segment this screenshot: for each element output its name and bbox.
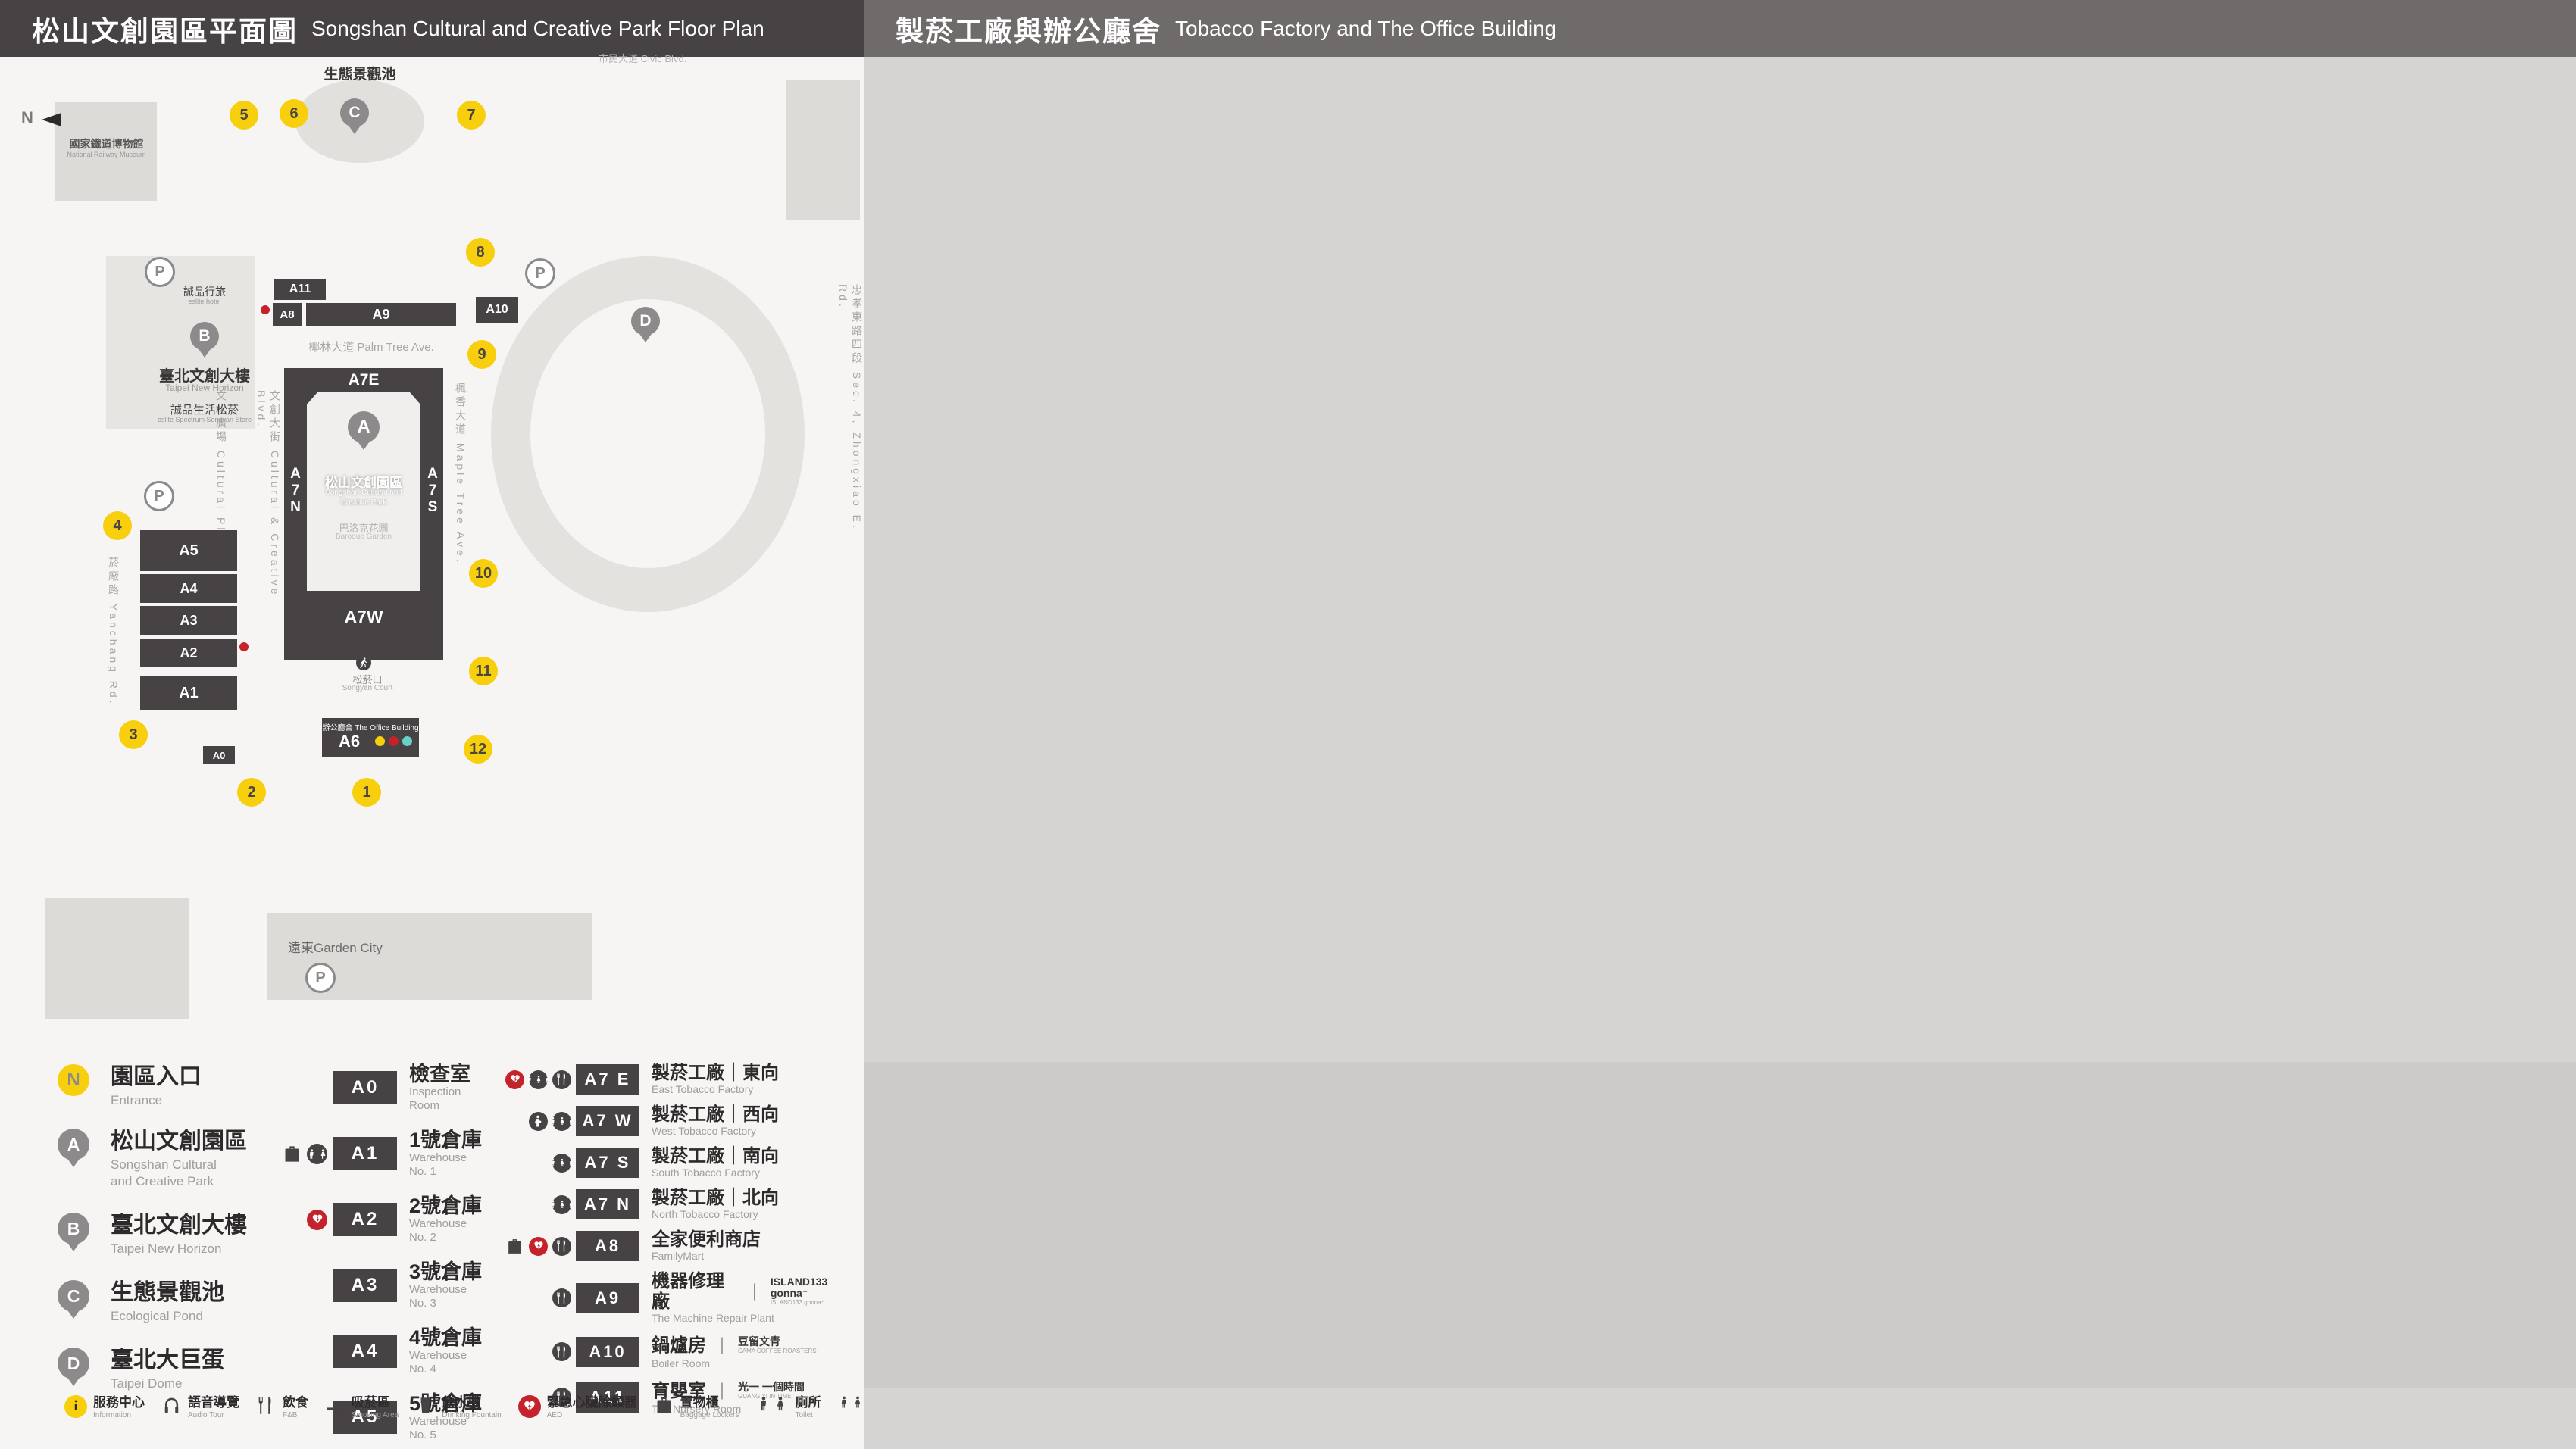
legend-item-en: Warehouse No. 4 <box>409 1349 485 1376</box>
legend-badge-A0: A0 <box>333 1071 397 1104</box>
legend-item-zh: 檢查室 <box>409 1063 485 1085</box>
amenity-en: Information <box>93 1410 145 1420</box>
map-court-en: Songyan Court <box>326 684 409 692</box>
legend-item-line1: 全家便利商店 <box>652 1229 761 1250</box>
legend-marker-text: 生態景觀池Ecological Pond <box>111 1280 224 1325</box>
map-entrance-4: 4 <box>103 511 132 540</box>
amenity-zh: 飲食 <box>283 1395 308 1410</box>
amenity-fountain: 飲水機Drinking Fountain <box>415 1395 501 1420</box>
map-a6-amenity-dot <box>389 736 399 746</box>
aed-icon <box>518 1395 541 1418</box>
map-eslite-store-en: eslite Spectrum Songyan Store <box>121 416 288 423</box>
map-parking-1: P <box>145 257 175 287</box>
map-entrance-7: 7 <box>457 101 486 130</box>
map-entrance-10: 10 <box>469 559 498 588</box>
street-palm-label: 椰林大道 Palm Tree Ave. <box>273 339 470 354</box>
floor-plan-poster: 松山文創園區平面圖 Songshan Cultural and Creative… <box>0 0 2576 1449</box>
legend-item-zh: 1號倉庫 <box>409 1129 485 1151</box>
legend-item-text: 1號倉庫Warehouse No. 1 <box>409 1129 485 1179</box>
legend-item-zh: 2號倉庫 <box>409 1194 485 1217</box>
legend-marker-en: Ecological Pond <box>111 1308 224 1325</box>
legend-item-en: FamilyMart <box>652 1250 761 1263</box>
legend-marker-en: Taipei New Horizon <box>111 1241 247 1257</box>
legend-item-text: 檢查室Inspection Room <box>409 1063 485 1113</box>
amenity-smoking: 吸菸區Smoking Area <box>325 1395 399 1420</box>
legend-item-line1: 製菸工廠｜北向 <box>652 1188 779 1208</box>
aed-icon <box>529 1237 548 1256</box>
map-a2: A2 <box>140 639 237 667</box>
header-left: 松山文創園區平面圖 Songshan Cultural and Creative… <box>0 0 896 57</box>
fnb-plain-icon <box>256 1395 277 1416</box>
legend-icons <box>235 1144 327 1164</box>
amenity-en: Toilet <box>795 1410 821 1420</box>
map-entrance-8: 8 <box>466 238 495 267</box>
street-yanchang: 菸廠路 Yanchang Rd. <box>106 557 121 723</box>
map-pin-b: B <box>190 322 219 351</box>
aed-icon <box>505 1070 524 1089</box>
amenity-text: 緊急心臟除顫器AED <box>547 1395 637 1420</box>
city-block-topright <box>786 80 860 220</box>
legend-badge-A3: A3 <box>333 1269 397 1302</box>
entrance-marker-icon: N <box>58 1064 89 1096</box>
allgender-icon <box>552 1112 571 1131</box>
legend-marker-zh: 松山文創園區 <box>111 1129 247 1154</box>
map-walker-badge <box>356 655 371 673</box>
amenity-zh: 廁所 <box>795 1395 821 1410</box>
legend-item-zh: 鍋爐房 <box>652 1335 706 1356</box>
legend-item-zh: 3號倉庫 <box>409 1260 485 1283</box>
amenity-zh-line: 飲食 <box>283 1395 308 1410</box>
map-entrance-6: 6 <box>280 99 308 128</box>
legend-badge-A1: A1 <box>333 1137 397 1170</box>
map-legend: N園區入口EntranceA松山文創園區Songshan Culturaland… <box>0 1057 864 1397</box>
map-a6-code: A6 <box>327 732 372 751</box>
city-block-bottomleft <box>45 898 189 1019</box>
legend-item-A9: A9機器修理廠｜ISLAND133 gonna⁺ISLAND133 gonna⁺… <box>485 1271 864 1325</box>
legend-item-A4: A44號倉庫Warehouse No. 4 <box>235 1326 485 1376</box>
map-entrance-1: 1 <box>352 778 381 807</box>
map-pin-c: C <box>340 98 369 127</box>
north-compass: N <box>21 108 33 128</box>
amenity-info: i服務中心Information <box>64 1395 145 1420</box>
map-entrance-9: 9 <box>467 340 496 369</box>
street-zhongxiao: 忠孝東路四段 Sec. 4, Zhongxiao E. Rd. <box>837 284 864 542</box>
tenant-sep: ｜ <box>714 1333 730 1357</box>
map-parking-2: P <box>525 258 555 289</box>
legend-icons <box>235 1210 327 1230</box>
map-a6: 辦公廳舍 The Office BuildingA6 <box>322 718 419 757</box>
aed-icon <box>307 1210 327 1230</box>
legend-icons <box>485 1112 571 1131</box>
legend-item-zh: 製菸工廠｜東向 <box>652 1063 779 1083</box>
legend-badge: A9 <box>576 1283 639 1313</box>
fnb-icon <box>552 1288 571 1307</box>
amenity-zh: 服務中心 <box>93 1395 145 1410</box>
legend-item-A7E: A7 E製菸工廠｜東向East Tobacco Factory <box>485 1063 864 1096</box>
legend-item-en: The Machine Repair Plant <box>652 1312 864 1325</box>
legend-item-A1: A11號倉庫Warehouse No. 1 <box>235 1129 485 1179</box>
map-a2-aed-dot <box>239 642 249 651</box>
legend-marker-text: 松山文創園區Songshan Culturaland Creative Park <box>111 1129 247 1190</box>
map-entrance-11: 11 <box>469 657 498 685</box>
map-pin-d: D <box>631 307 660 336</box>
fnb-icon <box>552 1237 571 1256</box>
map-pin-a: A <box>348 411 380 443</box>
amenity-zh-line: 語音導覽 <box>188 1395 239 1410</box>
gardencity-label: 遠東Garden City <box>288 937 383 956</box>
legend-icons <box>485 1195 571 1214</box>
amenity-zh: 置物櫃 <box>680 1395 719 1410</box>
legend-item-text: 2號倉庫Warehouse No. 2 <box>409 1194 485 1244</box>
toilet-icon <box>307 1144 327 1164</box>
page-title-right-en: Tobacco Factory and The Office Building <box>1175 17 1556 41</box>
legend-badge: A7 E <box>576 1064 639 1095</box>
legend-item-A7S: A7 S製菸工廠｜南向South Tobacco Factory <box>485 1146 864 1179</box>
legend-marker-en2: and Creative Park <box>111 1173 247 1190</box>
page-title-right-zh: 製菸工廠與辦公廳舍 <box>896 8 1161 49</box>
map-entrance-12: 12 <box>464 735 492 764</box>
tenant-zh: ISLAND133 gonna⁺ <box>771 1276 864 1299</box>
toilet-plain-icon <box>755 1395 789 1412</box>
amenity-zh-line: 置物櫃 <box>680 1395 739 1410</box>
pin-C: C <box>58 1280 89 1312</box>
map-parking-4: P <box>305 963 336 993</box>
legend-marker-en: Entrance <box>111 1092 202 1109</box>
place-pin-A: A <box>58 1129 89 1171</box>
legend-badge-A2: A2 <box>333 1203 397 1236</box>
tenant-sep: ｜ <box>746 1279 763 1304</box>
legend-marker-text: 臺北大巨蛋Taipei Dome <box>111 1348 224 1392</box>
amenity-text: 廁所Toilet <box>795 1395 821 1420</box>
place-pin-B: B <box>58 1213 89 1255</box>
railway-museum-label: 國家鐵道博物館 <box>59 136 154 151</box>
legend-item-A10: A10鍋爐房｜豆留文青CAMA COFFEE ROASTERSBoiler Ro… <box>485 1333 864 1370</box>
map-a7e-label: A7E <box>284 371 443 389</box>
place-pin-D: D <box>58 1348 89 1390</box>
street-ccblvd: 文創大街 Cultural & Creative Blvd. <box>255 390 283 617</box>
fnb-icon <box>552 1070 571 1089</box>
legend-item-text: 3號倉庫Warehouse No. 3 <box>409 1260 485 1310</box>
amenity-locker: 置物櫃Baggage Lockers <box>654 1395 739 1420</box>
legend-marker-en: Taipei Dome <box>111 1376 224 1392</box>
legend-item-en: East Tobacco Factory <box>652 1083 779 1096</box>
pin-B: B <box>58 1213 89 1244</box>
legend-item-zh: 全家便利商店 <box>652 1229 761 1250</box>
legend-icons <box>485 1237 571 1256</box>
legend-badge: A8 <box>576 1231 639 1261</box>
legend-item-line1: 製菸工廠｜西向 <box>652 1104 779 1125</box>
legend-icons <box>485 1288 571 1307</box>
amenity-text: 語音導覽Audio Tour <box>188 1395 239 1420</box>
allgender-icon <box>552 1195 571 1214</box>
tenant-zh: 光一 一個時間 <box>738 1382 805 1393</box>
legend-marker-zh: 生態景觀池 <box>111 1280 224 1306</box>
locker-icon <box>505 1237 524 1256</box>
tenant-en: ISLAND133 gonna⁺ <box>771 1299 864 1307</box>
amenity-en: Baggage Lockers <box>680 1410 739 1420</box>
amenity-aed: 緊急心臟除顫器AED <box>518 1395 637 1420</box>
map-a11: A11 <box>274 279 326 300</box>
park-map: 國家鐵道博物館National Railway Museum遠東Garden C… <box>0 57 864 1057</box>
street-civic-label: 市民大道 Civic Blvd. <box>599 51 686 65</box>
legend-item-text: 4號倉庫Warehouse No. 4 <box>409 1326 485 1376</box>
map-a7w-label: A7W <box>284 607 443 627</box>
legend-marker-zh: 園區入口 <box>111 1064 202 1090</box>
walker-badge-icon <box>356 655 371 670</box>
legend-item-en: Warehouse No. 2 <box>409 1217 485 1244</box>
legend-item-text: 製菸工廠｜東向East Tobacco Factory <box>652 1063 779 1096</box>
amenity-zh-line: 飲水機 <box>442 1395 501 1410</box>
legend-icons <box>485 1154 571 1173</box>
amenity-audio: 語音導覽Audio Tour <box>161 1395 239 1420</box>
map-a4: A4 <box>140 574 237 603</box>
map-garden-en: Baroque Garden <box>299 532 428 541</box>
amenity-zh-line: 緊急心臟除顫器 <box>547 1395 637 1410</box>
amenity-zh-line: 服務中心 <box>93 1395 145 1410</box>
north-arrow <box>35 113 61 126</box>
legend-badge: A10 <box>576 1337 639 1367</box>
railway-museum-label-en: National Railway Museum <box>59 151 154 158</box>
map-a6-amenity-dot <box>375 736 385 746</box>
map-eslite-store-zh: 誠品生活松菸 <box>121 401 288 417</box>
street-maple: 楓香大道 Maple Tree Ave. <box>453 383 468 610</box>
tenant-text: ISLAND133 gonna⁺ISLAND133 gonna⁺ <box>771 1276 864 1307</box>
legend-marker-text: 臺北文創大樓Taipei New Horizon <box>111 1213 247 1257</box>
legend-item-line1: 機器修理廠｜ISLAND133 gonna⁺ISLAND133 gonna⁺ <box>652 1271 864 1312</box>
legend-item-A2: A22號倉庫Warehouse No. 2 <box>235 1194 485 1244</box>
amenity-zh-line: 廁所 <box>795 1395 821 1410</box>
legend-item-zh: 機器修理廠 <box>652 1271 739 1312</box>
map-a10: A10 <box>476 297 518 323</box>
map-a8-aed-dot <box>261 305 270 314</box>
allgender-icon <box>552 1154 571 1173</box>
amenity-toilet-plain: 廁所Toilet <box>755 1395 821 1420</box>
map-park-en2: Creative Park <box>299 498 428 507</box>
legend-badge: A7 N <box>576 1189 639 1219</box>
amenity-zh: 飲水機 <box>442 1395 480 1410</box>
pin-D: D <box>58 1348 89 1379</box>
audio-icon <box>161 1395 182 1416</box>
map-eslite-hotel-en: eslite hotel <box>136 298 273 305</box>
legend-item-text: 製菸工廠｜西向West Tobacco Factory <box>652 1104 779 1138</box>
amenity-en: Smoking Area <box>352 1410 399 1420</box>
tenant-text: 豆留文青CAMA COFFEE ROASTERS <box>738 1336 817 1355</box>
amenity-zh: 緊急心臟除顫器 <box>547 1395 637 1410</box>
legend-item-A7W: A7 W製菸工廠｜西向West Tobacco Factory <box>485 1104 864 1138</box>
legend-item-en: South Tobacco Factory <box>652 1166 779 1179</box>
legend-item-zh: 製菸工廠｜北向 <box>652 1188 779 1208</box>
legend-marker-zh: 臺北大巨蛋 <box>111 1348 224 1373</box>
place-pin-C: C <box>58 1280 89 1323</box>
fnb-icon <box>552 1342 571 1361</box>
legend-item-zh: 製菸工廠｜西向 <box>652 1104 779 1125</box>
amenity-en: F&B <box>283 1410 308 1420</box>
legend-item-line1: 製菸工廠｜東向 <box>652 1063 779 1083</box>
legend-item-zh: 4號倉庫 <box>409 1326 485 1349</box>
map-a5: A5 <box>140 530 237 571</box>
legend-item-zh: 製菸工廠｜南向 <box>652 1146 779 1166</box>
legend-item-text: 製菸工廠｜北向North Tobacco Factory <box>652 1188 779 1221</box>
allgender-icon <box>529 1070 548 1089</box>
map-parking-3: P <box>144 481 174 511</box>
page-title-left-en: Songshan Cultural and Creative Park Floo… <box>311 17 764 41</box>
breastfeed-icon <box>529 1112 548 1131</box>
legend-item-line1: 製菸工廠｜南向 <box>652 1146 779 1166</box>
map-a1: A1 <box>140 676 237 710</box>
tenant-zh: 豆留文青 <box>738 1336 817 1348</box>
legend-marker-en: Songshan Cultural <box>111 1157 247 1173</box>
map-entrance-3: 3 <box>119 720 148 749</box>
legend-item-line1: 鍋爐房｜豆留文青CAMA COFFEE ROASTERS <box>652 1333 817 1357</box>
smoking-icon <box>325 1395 345 1416</box>
legend-col-b: A7 E製菸工廠｜東向East Tobacco FactoryA7 W製菸工廠｜… <box>485 1063 864 1424</box>
amenity-zh: 語音導覽 <box>188 1395 239 1410</box>
amenity-text: 飲水機Drinking Fountain <box>442 1395 501 1420</box>
legend-marker-text: 園區入口Entrance <box>111 1064 202 1109</box>
map-a6-office-label: 辦公廳舍 The Office Building <box>322 721 419 732</box>
legend-item-en: Warehouse No. 3 <box>409 1283 485 1310</box>
legend-item-A3: A33號倉庫Warehouse No. 3 <box>235 1260 485 1310</box>
amenity-en: Drinking Fountain <box>442 1410 501 1420</box>
legend-col-a: A0檢查室Inspection RoomA11號倉庫Warehouse No. … <box>235 1063 485 1449</box>
map-entrance-5: 5 <box>230 101 258 130</box>
amenity-text: 置物櫃Baggage Lockers <box>680 1395 739 1420</box>
amenity-zh-line: 吸菸區 <box>352 1395 399 1410</box>
amenity-en: Audio Tour <box>188 1410 239 1420</box>
legend-item-en: Inspection Room <box>409 1085 485 1113</box>
map-b-en: Taipei New Horizon <box>121 383 288 393</box>
map-a8: A8 <box>273 303 302 326</box>
amenity-fnb-plain: 飲食F&B <box>256 1395 308 1420</box>
tenant-en: CAMA COFFEE ROASTERS <box>738 1348 817 1355</box>
legend-icons <box>485 1342 571 1361</box>
pond-label: 生態景觀池 <box>288 63 432 83</box>
amenity-en: AED <box>547 1410 637 1420</box>
info-icon: i <box>64 1395 87 1418</box>
amenity-text: 飲食F&B <box>283 1395 308 1420</box>
legend-item-text: 全家便利商店FamilyMart <box>652 1229 761 1263</box>
page-title-left-zh: 松山文創園區平面圖 <box>32 8 298 49</box>
locker-icon <box>654 1395 674 1416</box>
map-a3: A3 <box>140 606 237 635</box>
fountain-icon <box>415 1395 436 1416</box>
amenity-text: 服務中心Information <box>93 1395 145 1420</box>
map-a6-amenity-dot <box>402 736 412 746</box>
legend-item-en: Warehouse No. 1 <box>409 1151 485 1179</box>
legend-icons <box>485 1070 571 1089</box>
legend-badge: A7 S <box>576 1148 639 1178</box>
locker-icon <box>282 1144 302 1164</box>
legend-item-A0: A0檢查室Inspection Room <box>235 1063 485 1113</box>
map-entrance-2: 2 <box>237 778 266 807</box>
legend-marker-zh: 臺北文創大樓 <box>111 1213 247 1238</box>
map-a0: A0 <box>203 746 235 764</box>
map-park-en1: Songshan Cultural and <box>299 489 428 497</box>
map-a9: A9 <box>306 303 456 326</box>
legend-item-text: 製菸工廠｜南向South Tobacco Factory <box>652 1146 779 1179</box>
legend-item-A7N: A7 N製菸工廠｜北向North Tobacco Factory <box>485 1188 864 1221</box>
legend-item-en: North Tobacco Factory <box>652 1208 779 1221</box>
legend-item-text: 鍋爐房｜豆留文青CAMA COFFEE ROASTERSBoiler Room <box>652 1333 817 1370</box>
legend-item-en: Boiler Room <box>652 1357 817 1370</box>
legend-item-text: 機器修理廠｜ISLAND133 gonna⁺ISLAND133 gonna⁺Th… <box>652 1271 864 1325</box>
pin-A: A <box>58 1129 89 1160</box>
header-right: 製菸工廠與辦公廳舍 Tobacco Factory and The Office… <box>864 0 2576 57</box>
legend-badge-A4: A4 <box>333 1335 397 1368</box>
amenity-text: 吸菸區Smoking Area <box>352 1395 399 1420</box>
legend-item-A8: A8全家便利商店FamilyMart <box>485 1229 864 1263</box>
amenity-zh: 吸菸區 <box>352 1395 390 1410</box>
right-panel-a6-band <box>864 1062 2576 1388</box>
legend-badge: A7 W <box>576 1106 639 1136</box>
legend-item-en: West Tobacco Factory <box>652 1125 779 1138</box>
